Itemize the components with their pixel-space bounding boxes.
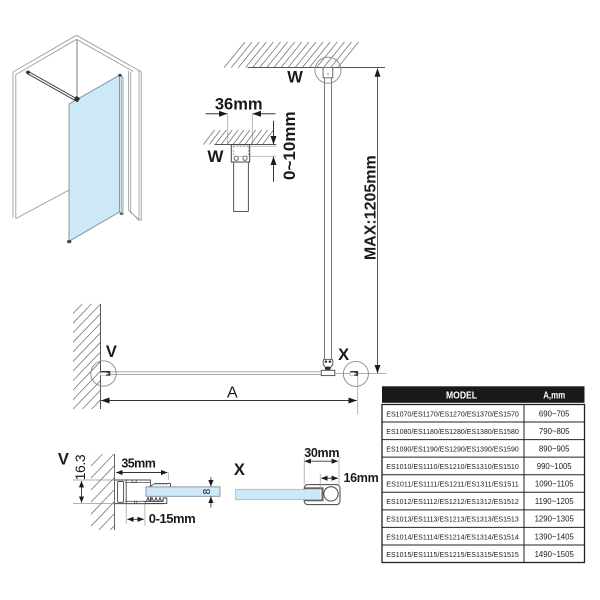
svg-text:ES1010/ES1110/ES1210/ES1310/ES: ES1010/ES1110/ES1210/ES1310/ES1510	[386, 462, 519, 471]
svg-text:1290~1305: 1290~1305	[535, 515, 575, 524]
svg-text:V: V	[58, 451, 69, 469]
svg-text:W: W	[207, 147, 224, 166]
svg-text:ES1090/ES1190/ES1290/ES1390/ES: ES1090/ES1190/ES1290/ES1390/ES1590	[386, 444, 519, 453]
svg-text:W: W	[287, 69, 303, 87]
svg-text:ES1070/ES1170/ES1270/ES1370/ES: ES1070/ES1170/ES1270/ES1370/ES1570	[386, 409, 519, 418]
svg-text:35mm: 35mm	[121, 457, 155, 471]
svg-text:ES1012/ES1112/ES1212/ES1312/ES: ES1012/ES1112/ES1212/ES1312/ES1512	[386, 497, 519, 506]
svg-text:16.3: 16.3	[72, 454, 88, 480]
svg-text:A: A	[227, 385, 238, 402]
svg-text:MAX:1205mm: MAX:1205mm	[362, 155, 379, 260]
svg-text:ES1014/ES1114/ES1214/ES1314/ES: ES1014/ES1114/ES1214/ES1314/ES1514	[386, 532, 519, 541]
svg-text:790~805: 790~805	[539, 427, 570, 436]
svg-text:16mm: 16mm	[344, 471, 379, 485]
svg-text:1390~1405: 1390~1405	[535, 532, 575, 541]
svg-text:0-15mm: 0-15mm	[149, 511, 195, 526]
svg-text:690~705: 690~705	[539, 409, 570, 418]
svg-text:ES1013/ES1113/ES1213/ES1313/ES: ES1013/ES1113/ES1213/ES1313/ES1513	[386, 515, 519, 524]
svg-text:890~905: 890~905	[539, 444, 570, 453]
svg-text:ES1080/ES1180/ES1280/ES1380/ES: ES1080/ES1180/ES1280/ES1380/ES1580	[386, 427, 519, 436]
svg-text:A,mm: A,mm	[543, 391, 565, 402]
svg-text:0~10mm: 0~10mm	[280, 111, 299, 180]
svg-text:36mm: 36mm	[215, 96, 263, 114]
svg-text:V: V	[106, 343, 117, 361]
svg-text:1090~1105: 1090~1105	[535, 480, 574, 489]
svg-text:1190~1205: 1190~1205	[535, 497, 574, 506]
svg-text:30mm: 30mm	[304, 446, 339, 460]
svg-text:X: X	[234, 461, 245, 479]
svg-text:MODEL: MODEL	[446, 391, 477, 402]
svg-text:ES1011/ES1111/ES1211/ES1311/ES: ES1011/ES1111/ES1211/ES1311/ES1511	[386, 480, 519, 489]
svg-text:ES1015/ES1115/ES1215/ES1315/ES: ES1015/ES1115/ES1215/ES1315/ES1515	[386, 550, 519, 559]
svg-text:1490~1505: 1490~1505	[535, 550, 575, 559]
svg-text:X: X	[338, 346, 349, 364]
svg-text:8: 8	[202, 488, 213, 494]
svg-text:990~1005: 990~1005	[537, 462, 573, 471]
